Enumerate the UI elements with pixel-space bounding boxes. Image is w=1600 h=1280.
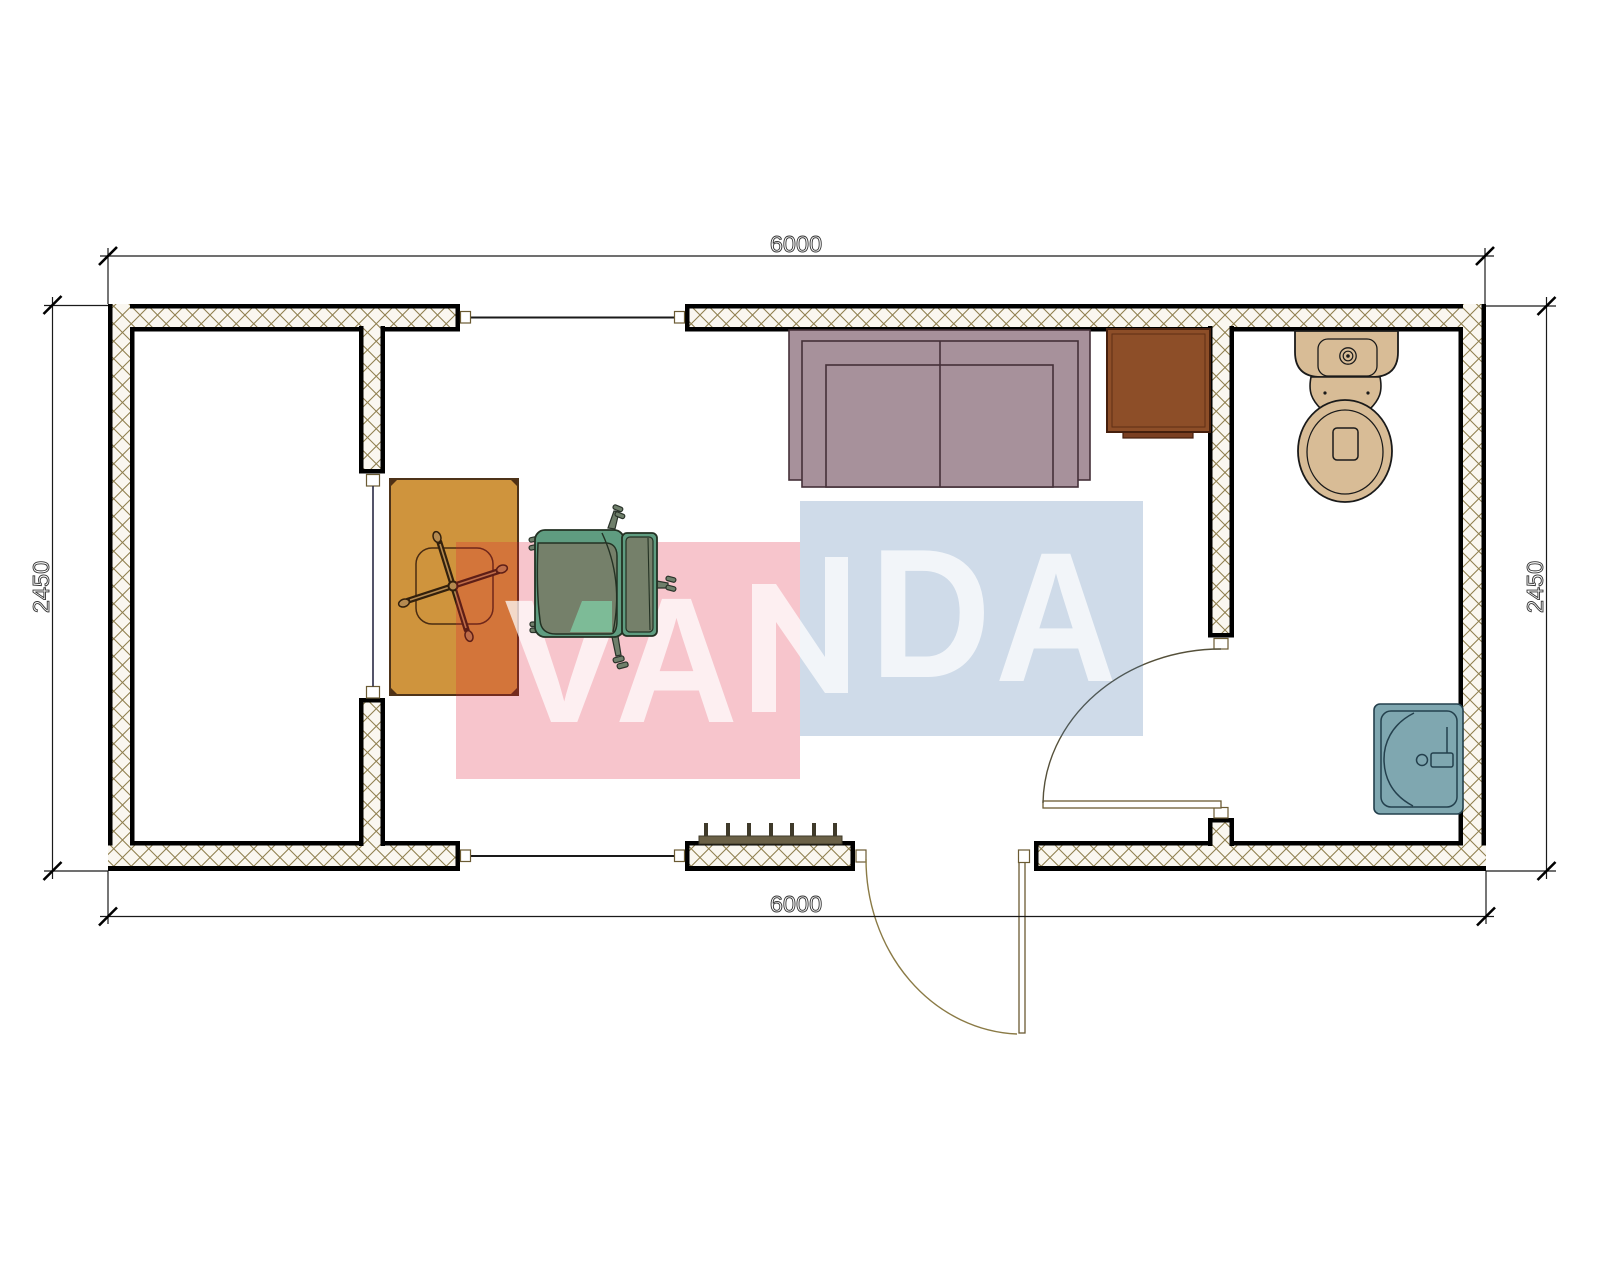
svg-text:6000: 6000 — [770, 231, 822, 257]
svg-text:2450: 2450 — [1522, 561, 1548, 613]
svg-text:6000: 6000 — [770, 891, 822, 917]
svg-text:2450: 2450 — [28, 561, 54, 613]
svg-text:A: A — [995, 515, 1117, 721]
svg-text:D: D — [870, 510, 991, 716]
